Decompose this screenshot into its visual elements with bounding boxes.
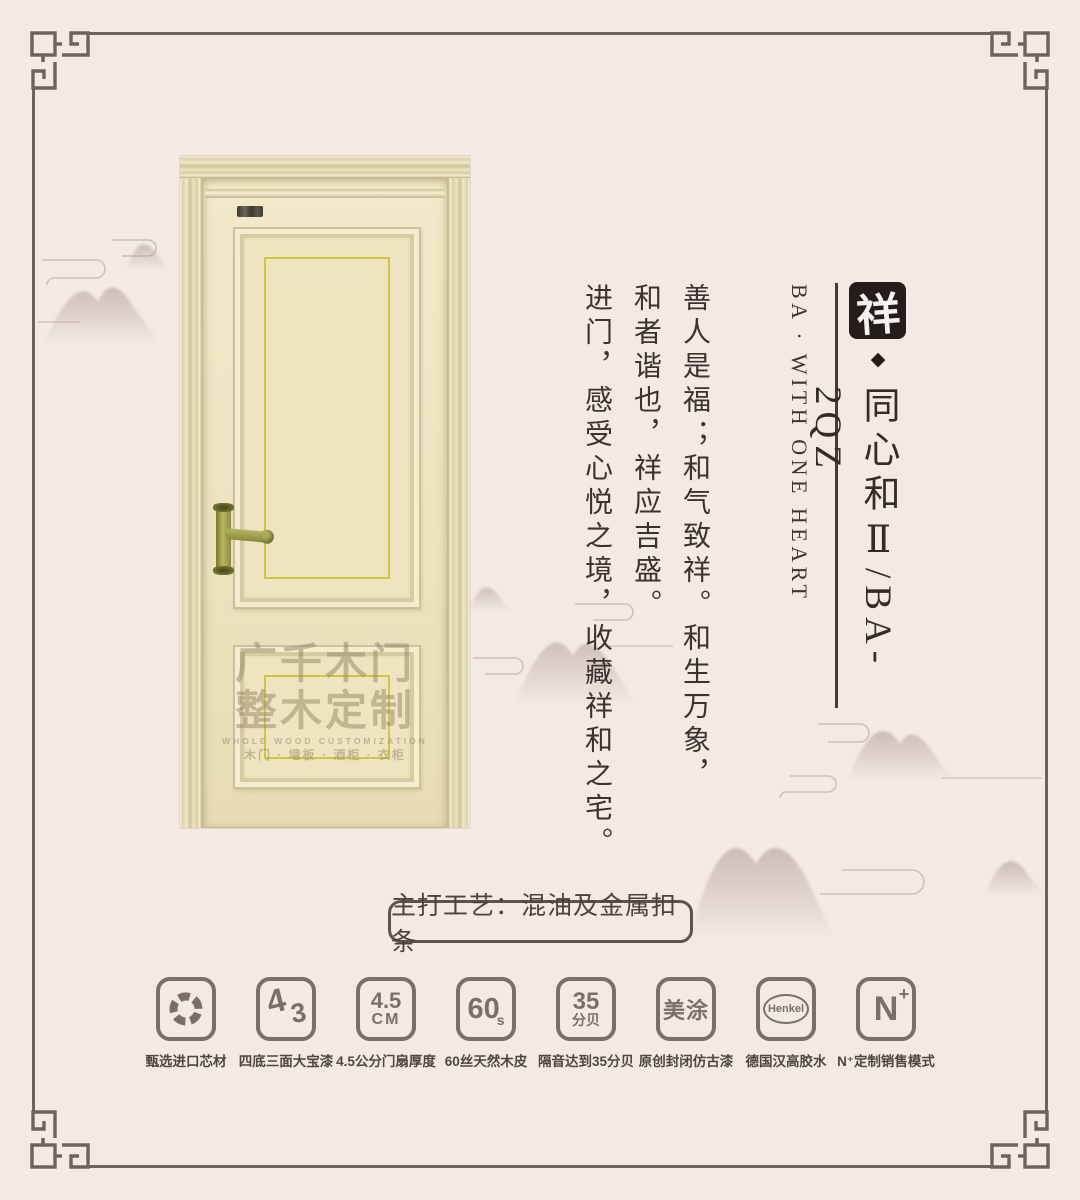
brand-plaque (237, 206, 263, 217)
frame-line-bottom (88, 1165, 992, 1168)
handle-lever (225, 528, 271, 543)
product-poster: 广千木门 整木定制 WHOLE WOOD CUSTOMIZATION 木门 · … (0, 0, 1080, 1200)
glyph-4: 4 (263, 980, 290, 1021)
fret-corner-icon (986, 30, 1050, 94)
poem-block: 善人是福；和气致祥。和生万象， 和者谐也，祥应吉盛。 进门，感受心悦之境，收藏祥… (583, 283, 709, 868)
feature-label: N⁺定制销售模式 (836, 1050, 936, 1070)
craft-banner: 主打工艺：混油及金属扣条 (388, 900, 693, 943)
frame-line-left (32, 88, 35, 1112)
feature-paint-layers: 4 3 四底三面大宝漆 (236, 977, 336, 1070)
feature-nplus-sales: N + N⁺定制销售模式 (836, 977, 936, 1070)
feature-label: 隔音达到35分贝 (536, 1050, 636, 1070)
glyph-decibel: 分贝 (572, 1014, 600, 1027)
product-title-chinese: 同心和Ⅱ/BA-2QZ (852, 386, 902, 726)
brand-watermark: 广千木门 整木定制 WHOLE WOOD CUSTOMIZATION 木门 · … (202, 640, 448, 762)
poem-column-1: 善人是福；和气致祥。和生万象， (681, 283, 709, 868)
feature-henkel-glue: Henkel 德国汉高胶水 (736, 977, 836, 1070)
diamond-icon: ◆ (858, 348, 898, 371)
door-casing-left (180, 156, 202, 828)
door-casing-top (180, 156, 470, 178)
xiang-seal: 祥 (849, 282, 906, 339)
poem-column-3: 进门，感受心悦之境，收藏祥和之宅。 (583, 283, 611, 868)
glyph-n: N (874, 990, 899, 1028)
gold-metal-trim (264, 257, 390, 579)
frame-line-top (88, 32, 992, 35)
45cm-icon: 4.5 CM (356, 977, 416, 1041)
product-title-english: BA · WITH ONE HEART (782, 284, 816, 714)
door-casing-right (448, 156, 470, 828)
title-separator-line (835, 283, 838, 708)
feature-label: 4.5公分门扇厚度 (336, 1050, 436, 1070)
feature-label: 甄选进口芯材 (136, 1050, 236, 1070)
feature-label: 60丝天然木皮 (436, 1050, 536, 1070)
glyph-henkel: Henkel (763, 994, 809, 1024)
feature-door-thickness: 4.5 CM 4.5公分门扇厚度 (336, 977, 436, 1070)
door-product-image: 广千木门 整木定制 WHOLE WOOD CUSTOMIZATION 木门 · … (180, 156, 470, 828)
watermark-english: WHOLE WOOD CUSTOMIZATION (202, 737, 448, 747)
feature-label: 德国汉高胶水 (736, 1050, 836, 1070)
glyph-s: s (497, 1013, 505, 1027)
feature-label: 原创封闭仿古漆 (636, 1050, 736, 1070)
frame-line-right (1045, 88, 1048, 1112)
feature-sound-insulation: 35 分贝 隔音达到35分贝 (536, 977, 636, 1070)
aperture-icon (156, 977, 216, 1041)
60s-icon: 60 s (456, 977, 516, 1041)
seal-character: 祥 (853, 277, 901, 344)
glyph-3: 3 (288, 997, 308, 1030)
watermark-line1: 广千木门 (202, 640, 448, 687)
35db-icon: 35 分贝 (556, 977, 616, 1041)
feature-wood-veneer: 60 s 60丝天然木皮 (436, 977, 536, 1070)
glyph-45: 4.5 (371, 991, 402, 1012)
feature-label: 四底三面大宝漆 (236, 1050, 336, 1070)
henkel-logo-icon: Henkel (756, 977, 816, 1041)
watermark-line2: 整木定制 (202, 687, 448, 734)
watermark-categories: 木门 · 墙板 · 酒柜 · 衣柜 (202, 749, 448, 762)
mountains-clouds-right-icon (690, 688, 1055, 943)
glyph-meitu: 美涂 (663, 993, 709, 1025)
n-plus-icon: N + (856, 977, 916, 1041)
43-paint-icon: 4 3 (256, 977, 316, 1041)
door-top-molding (205, 189, 445, 198)
door-handle (216, 507, 276, 573)
poem-column-2: 和者谐也，祥应吉盛。 (632, 283, 660, 868)
feature-imported-core: 甄选进口芯材 (136, 977, 236, 1070)
fret-corner-icon (30, 30, 94, 94)
glyph-plus: + (899, 985, 910, 1003)
meitu-paint-icon: 美涂 (656, 977, 716, 1041)
feature-antique-paint: 美涂 原创封闭仿古漆 (636, 977, 736, 1070)
fret-corner-icon (30, 1106, 94, 1170)
glyph-cm: CM (372, 1012, 401, 1027)
glyph-35: 35 (573, 991, 600, 1014)
glyph-60: 60 (467, 995, 499, 1024)
door-leaf: 广千木门 整木定制 WHOLE WOOD CUSTOMIZATION 木门 · … (202, 178, 448, 828)
craft-banner-text: 主打工艺：混油及金属扣条 (391, 886, 690, 958)
fret-corner-icon (986, 1106, 1050, 1170)
